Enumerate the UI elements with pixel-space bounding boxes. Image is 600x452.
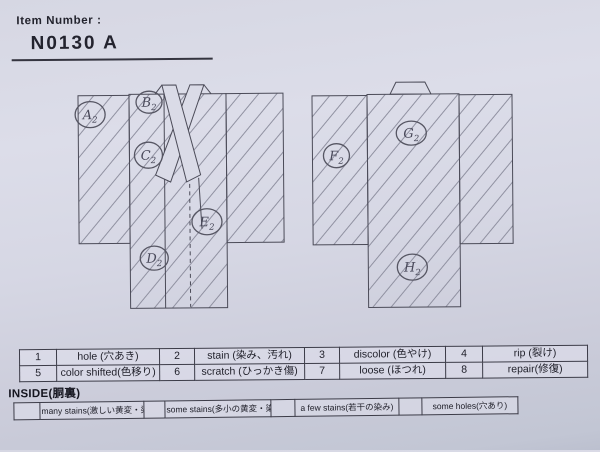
legend-label-cell: hole (穴あき) [56, 349, 159, 366]
inside-option-cell: many stains(激しい黄変・染み) [40, 401, 144, 419]
inspection-sheet: Item Number : N0130 A [0, 0, 600, 452]
legend-num-cell: 3 [304, 347, 339, 363]
legend-num-cell: 6 [160, 364, 195, 380]
back-left-sleeve [312, 95, 368, 244]
legend-num-cell: 5 [20, 365, 57, 381]
back-right-sleeve [459, 94, 513, 243]
legend-label-cell: scratch (ひっかき傷) [195, 363, 305, 380]
legend-label-cell: loose (ほつれ) [340, 362, 446, 379]
inside-checkbox-cell [399, 398, 422, 415]
inside-checkbox-cell [14, 403, 40, 420]
inside-checkbox-cell [144, 401, 165, 418]
front-right-sleeve [226, 93, 284, 242]
legend-num-cell: 2 [159, 348, 194, 364]
kimono-front-view [78, 84, 285, 309]
legend-label-cell: rip (裂け) [482, 345, 587, 362]
kimono-diagram: A2 B2 C2 D2 E2 F2 G2 H2 [0, 0, 600, 452]
legend-label-cell: repair(修復) [483, 361, 588, 378]
inside-option-cell: some holes(穴あり) [422, 397, 518, 415]
legend-label-cell: stain (染み、汚れ) [194, 347, 304, 364]
legend-label-cell: color shifted(色移り) [57, 365, 160, 382]
front-collar-shoulder-right [204, 85, 211, 94]
legend-label-cell: discolor (色やけ) [339, 346, 445, 363]
legend-num-cell: 4 [445, 346, 482, 362]
inside-section-title: INSIDE(胴裏) [8, 385, 80, 402]
back-collar-tab [390, 82, 431, 94]
defect-legend-table: 1 hole (穴あき) 2 stain (染み、汚れ) 3 discolor … [19, 345, 588, 382]
inside-checkbox-cell [271, 399, 295, 416]
legend-num-cell: 1 [19, 349, 56, 365]
inside-option-cell: some stains(多小の黄変・染み) [165, 400, 271, 418]
legend-num-cell: 8 [446, 362, 483, 378]
inside-option-cell: a few stains(若干の染み) [295, 398, 399, 416]
legend-num-cell: 7 [305, 363, 340, 379]
